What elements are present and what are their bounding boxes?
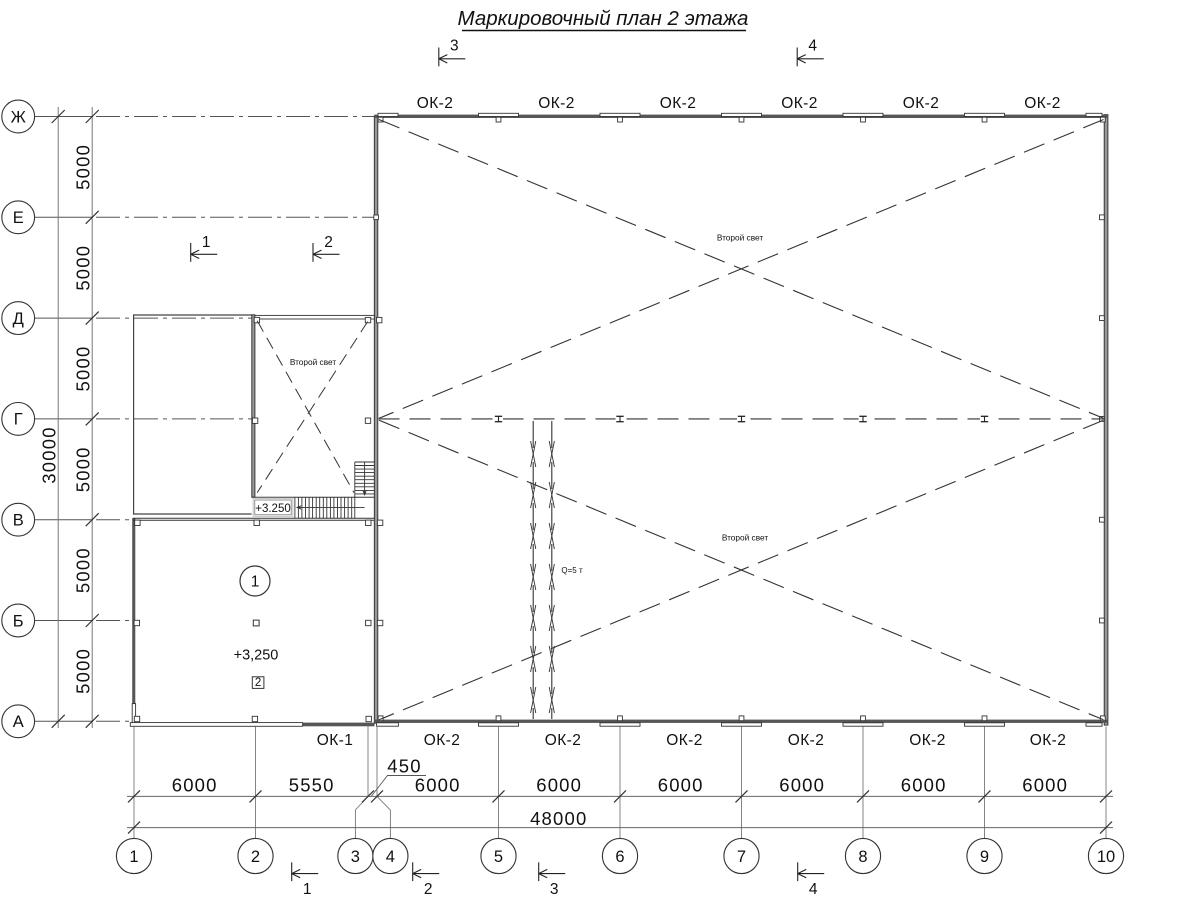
svg-text:5000: 5000 <box>73 547 94 593</box>
svg-text:Маркировочный план 2 этажа: Маркировочный план 2 этажа <box>458 7 749 30</box>
svg-text:10: 10 <box>1097 848 1115 866</box>
svg-text:Ж: Ж <box>11 108 27 126</box>
svg-text:8: 8 <box>858 848 867 866</box>
svg-text:Б: Б <box>13 612 24 630</box>
svg-text:3: 3 <box>550 881 559 898</box>
svg-text:1: 1 <box>202 234 211 251</box>
svg-text:5550: 5550 <box>289 775 335 796</box>
svg-text:6000: 6000 <box>658 775 704 796</box>
svg-text:6000: 6000 <box>779 775 825 796</box>
svg-text:ОК-2: ОК-2 <box>660 95 696 112</box>
svg-text:6000: 6000 <box>536 775 582 796</box>
svg-text:6000: 6000 <box>172 775 218 796</box>
svg-text:5000: 5000 <box>73 144 94 190</box>
svg-text:ОК-2: ОК-2 <box>1030 732 1066 749</box>
svg-text:2: 2 <box>324 234 333 251</box>
svg-text:1: 1 <box>251 574 260 591</box>
svg-text:7: 7 <box>737 848 746 866</box>
svg-text:Второй свет: Второй свет <box>717 233 764 243</box>
svg-text:2: 2 <box>424 881 433 898</box>
svg-text:450: 450 <box>387 756 421 777</box>
svg-text:30000: 30000 <box>39 426 60 483</box>
svg-text:5: 5 <box>494 848 503 866</box>
svg-text:Г: Г <box>14 411 23 429</box>
svg-text:2: 2 <box>255 677 261 689</box>
svg-text:48000: 48000 <box>530 808 587 829</box>
svg-text:6: 6 <box>615 848 624 866</box>
svg-text:6000: 6000 <box>1022 775 1068 796</box>
svg-text:5000: 5000 <box>73 648 94 694</box>
svg-text:ОК-1: ОК-1 <box>317 732 353 749</box>
svg-text:ОК-2: ОК-2 <box>538 95 574 112</box>
svg-text:5000: 5000 <box>73 245 94 291</box>
svg-text:3: 3 <box>351 848 360 866</box>
svg-text:ОК-2: ОК-2 <box>781 95 817 112</box>
svg-text:Второй свет: Второй свет <box>290 357 337 367</box>
svg-text:ОК-2: ОК-2 <box>788 732 824 749</box>
svg-text:1: 1 <box>129 848 138 866</box>
svg-text:ОК-2: ОК-2 <box>903 95 939 112</box>
svg-text:9: 9 <box>980 848 989 866</box>
svg-text:4: 4 <box>808 37 817 54</box>
svg-text:2: 2 <box>251 848 260 866</box>
svg-text:Е: Е <box>13 209 24 227</box>
svg-text:Q=5 т: Q=5 т <box>561 566 583 575</box>
svg-text:4: 4 <box>809 881 818 898</box>
svg-text:4: 4 <box>386 848 395 866</box>
svg-text:+3.250: +3.250 <box>255 503 291 515</box>
svg-text:ОК-2: ОК-2 <box>909 732 945 749</box>
svg-text:5000: 5000 <box>73 446 94 492</box>
svg-text:ОК-2: ОК-2 <box>417 95 453 112</box>
svg-text:ОК-2: ОК-2 <box>424 732 460 749</box>
svg-text:6000: 6000 <box>415 775 461 796</box>
svg-text:ОК-2: ОК-2 <box>545 732 581 749</box>
svg-text:6000: 6000 <box>901 775 947 796</box>
svg-text:5000: 5000 <box>73 346 94 392</box>
svg-text:+3,250: +3,250 <box>234 648 279 664</box>
svg-text:Д: Д <box>13 310 24 328</box>
svg-text:Второй свет: Второй свет <box>722 532 769 542</box>
svg-text:А: А <box>13 713 24 731</box>
svg-text:3: 3 <box>450 37 459 54</box>
svg-text:В: В <box>13 512 24 530</box>
svg-text:1: 1 <box>303 881 312 898</box>
svg-text:ОК-2: ОК-2 <box>1024 95 1060 112</box>
svg-text:ОК-2: ОК-2 <box>666 732 702 749</box>
